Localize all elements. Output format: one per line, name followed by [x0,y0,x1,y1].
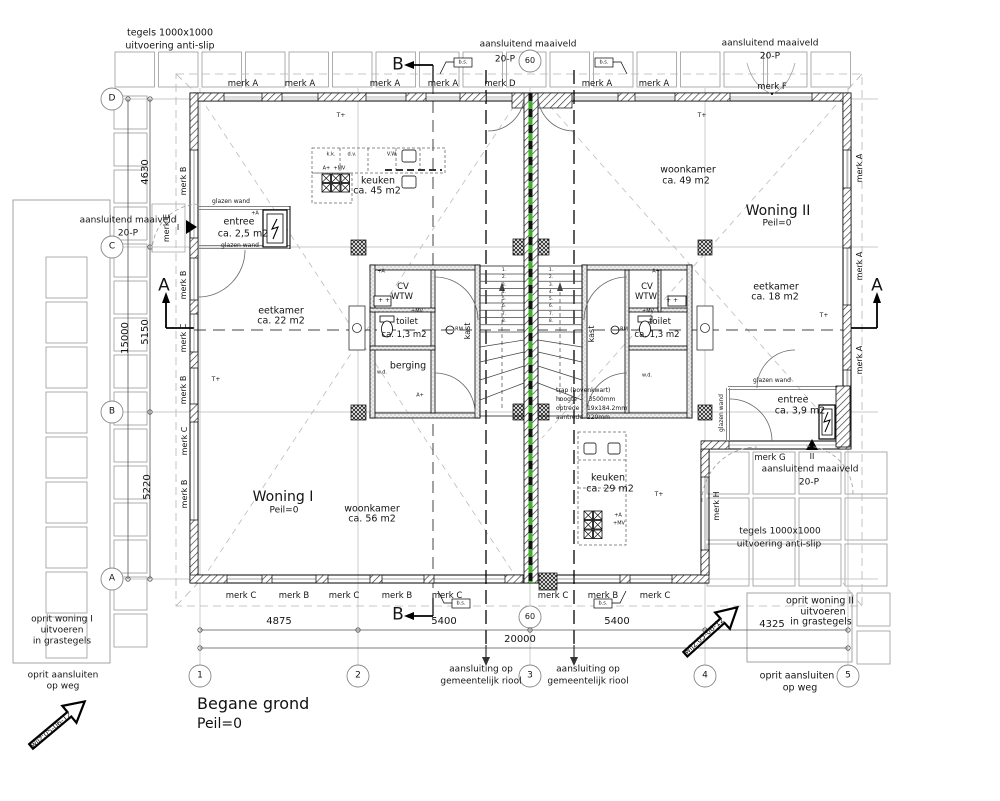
entrance-arrow-1 [186,220,197,234]
drawing-title: Begane grond [197,694,309,713]
revision-arrow-right [678,599,745,662]
sink-icon [584,443,620,454]
dimension-ticks [126,97,850,650]
exterior-walls [190,93,851,590]
drawing-level: Peil=0 [197,716,309,732]
entree-2 [702,350,853,502]
revision-arrow-left [24,693,92,755]
party-wall [524,93,538,583]
hob-icon [584,511,602,539]
kitchen-1 [312,148,445,203]
title-block: Begane grond Peil=0 [197,694,309,732]
floor-plan-linework [0,0,1000,801]
floor-plan-drawing: tegels 1000x1000uitvoering anti-slipaans… [0,0,1000,801]
meter-cabinet-2 [819,405,835,439]
hob-icon [322,174,350,192]
entree-1 [152,204,290,297]
floor-span-diagonals [200,97,843,583]
dimension-lines [128,99,848,648]
paving-tiles [46,52,890,664]
kitchen-2 [578,432,626,545]
roof-outline-dashed [176,74,862,606]
leader-lines [747,63,795,95]
